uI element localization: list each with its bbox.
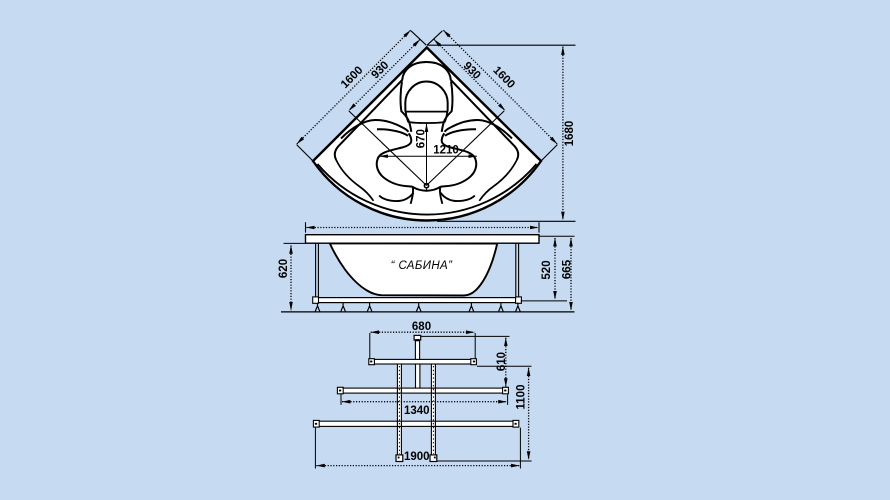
svg-text:680: 680 <box>412 321 431 333</box>
svg-text:665: 665 <box>561 259 573 279</box>
svg-text:930: 930 <box>369 59 391 81</box>
svg-text:520: 520 <box>541 260 553 279</box>
svg-text:1210: 1210 <box>433 144 459 156</box>
svg-text:“ САБИНА”: “ САБИНА” <box>391 260 454 272</box>
svg-text:1900: 1900 <box>404 451 430 463</box>
svg-text:1340: 1340 <box>404 405 430 417</box>
svg-text:1680: 1680 <box>564 121 576 147</box>
svg-text:1600: 1600 <box>490 64 517 91</box>
svg-text:670: 670 <box>415 129 427 148</box>
svg-text:610: 610 <box>496 352 508 371</box>
svg-text:930: 930 <box>461 60 483 82</box>
svg-text:1600: 1600 <box>339 64 366 91</box>
svg-text:1100: 1100 <box>515 385 527 410</box>
svg-text:620: 620 <box>278 259 290 278</box>
